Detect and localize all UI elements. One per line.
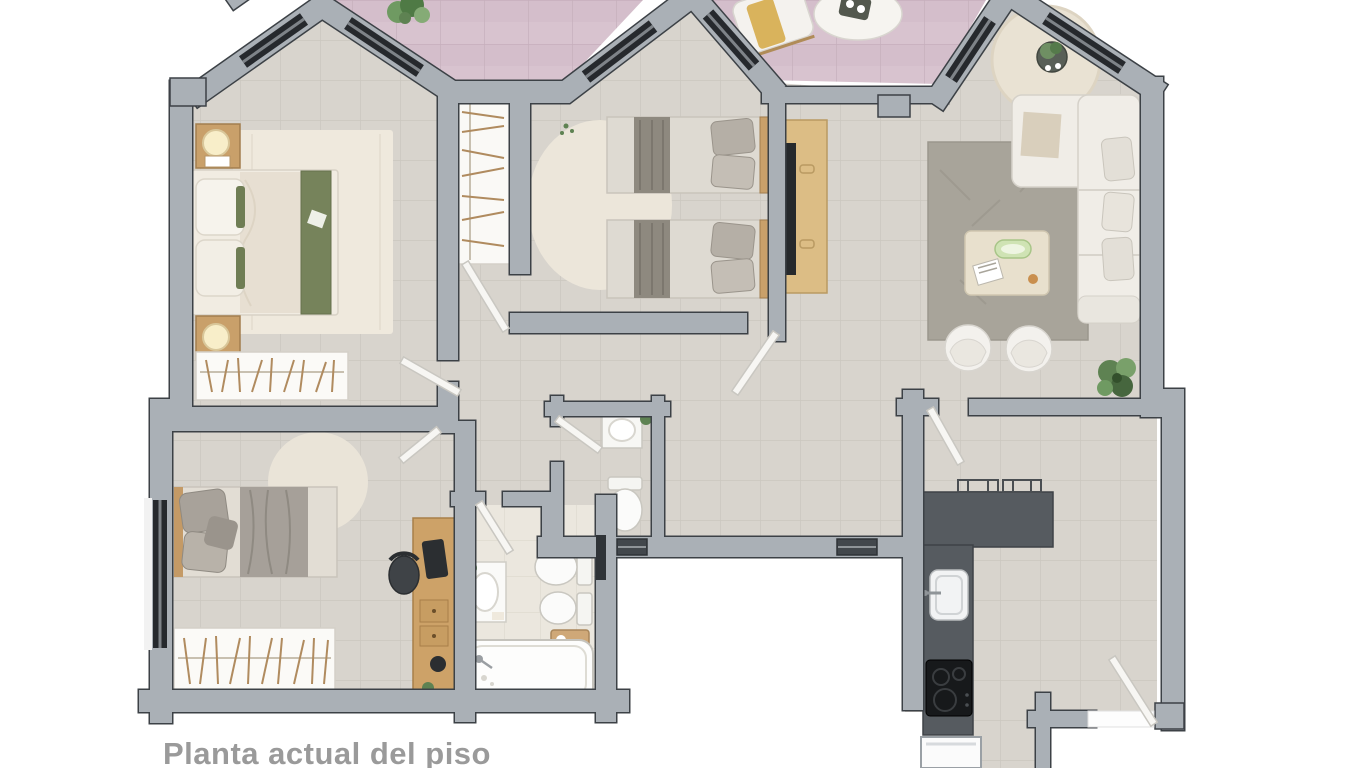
pillow [1101,137,1135,182]
side-table [1037,42,1067,72]
tv [786,143,796,275]
appliance [921,737,981,768]
tub-chair [1006,326,1052,372]
exterior-cutout [617,557,905,768]
floorplan-caption: Planta actual del piso [163,736,491,768]
floor-plan-drawing [0,0,1366,768]
entry-threshold [617,539,647,555]
exterior-cutout [1088,727,1198,768]
pillow [1102,237,1135,281]
single-bed [607,117,775,193]
shaft [596,535,606,580]
closet-with-hangers [174,628,335,694]
closet-with-hangers [196,352,348,400]
single-bed [174,487,337,577]
entry-threshold [837,539,877,555]
pillow [1101,192,1134,232]
desk-bedroom-window [144,498,160,650]
desk-lamp [430,656,446,672]
tv-console [783,120,827,293]
terrace-plant [387,0,430,24]
hall-wardrobe [458,100,510,264]
cooktop [926,660,972,716]
sofa-blanket [1021,112,1062,159]
terrace-parapet [225,0,267,11]
floor-plan-page: Planta actual del piso [0,0,1366,768]
lamp [203,324,229,350]
croissant [1028,274,1038,284]
bidet [540,592,592,625]
single-bed [607,220,775,298]
nightstand [196,124,240,168]
tub-chair [945,325,991,371]
lamp [203,130,229,156]
desk [413,518,455,708]
green-runner [301,171,331,314]
double-bed [192,170,338,315]
coffee-table [965,231,1049,295]
counter-top [923,492,1053,547]
